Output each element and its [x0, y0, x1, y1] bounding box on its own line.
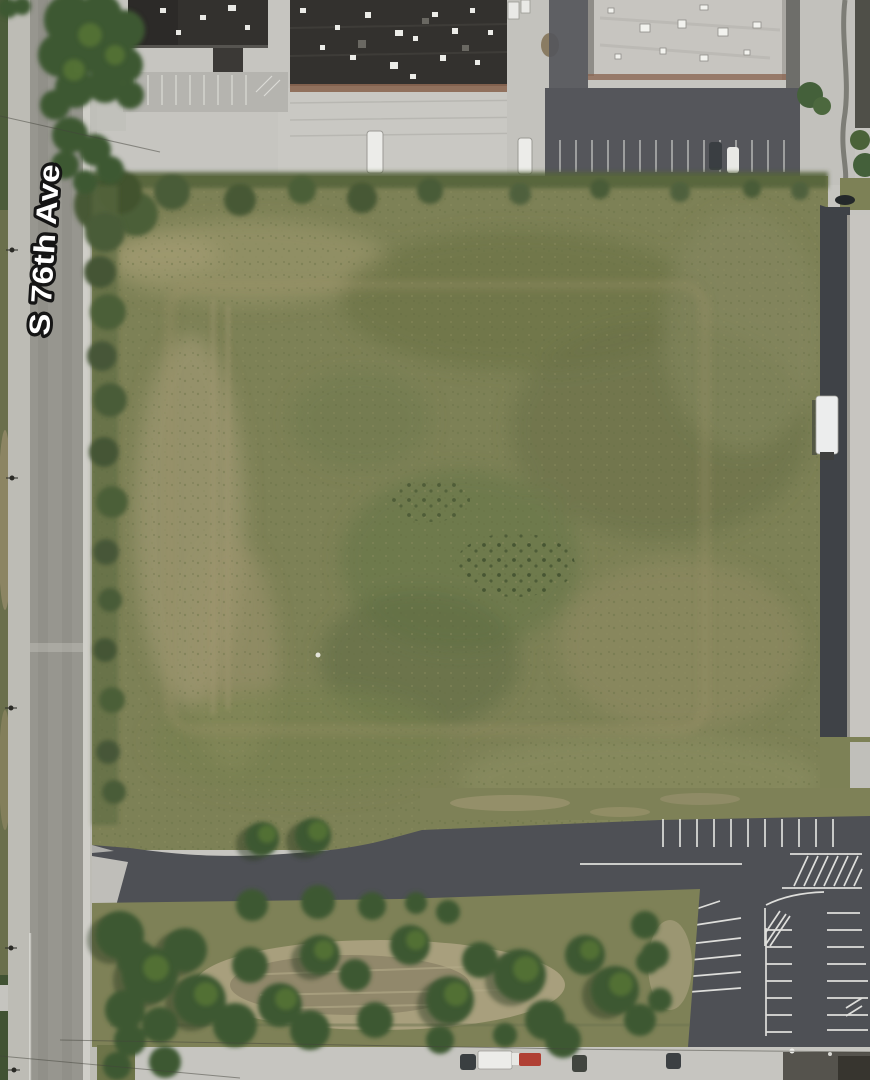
white-truck-top-1 [508, 2, 519, 19]
car-east [835, 195, 855, 205]
white-box-truck [816, 396, 838, 454]
right-loading-drive [812, 195, 870, 819]
vacant-lot-field [74, 170, 828, 850]
building-corner-southeast [783, 1049, 870, 1080]
building-east [847, 215, 870, 737]
white-van-2 [518, 138, 532, 174]
satellite-map-view[interactable]: S 76th Ave [0, 0, 870, 1080]
bottom-service-strip [97, 1045, 870, 1080]
building-dark-roof-1 [128, 0, 268, 48]
vehicle-dark-3 [666, 1053, 681, 1069]
white-van-1 [367, 131, 383, 173]
vehicle-red-truck [519, 1053, 541, 1066]
building-dark-roof-2 [290, 0, 508, 92]
white-truck-top-2 [521, 0, 530, 13]
parking-lot-west [123, 72, 288, 112]
parking-lot-east [545, 88, 800, 182]
parked-car-dark [709, 142, 722, 170]
parked-car-white [727, 147, 739, 173]
small-dark-structure [213, 48, 243, 74]
vehicle-dark-1 [460, 1054, 476, 1070]
vehicle-dark-2 [572, 1055, 587, 1072]
building-light-roof [588, 0, 786, 80]
vehicle-white-truck [478, 1051, 512, 1069]
aerial-photo: S 76th Ave [0, 0, 870, 1080]
road-edge-line [29, 933, 31, 1080]
asphalt-parking-south [682, 888, 870, 1047]
